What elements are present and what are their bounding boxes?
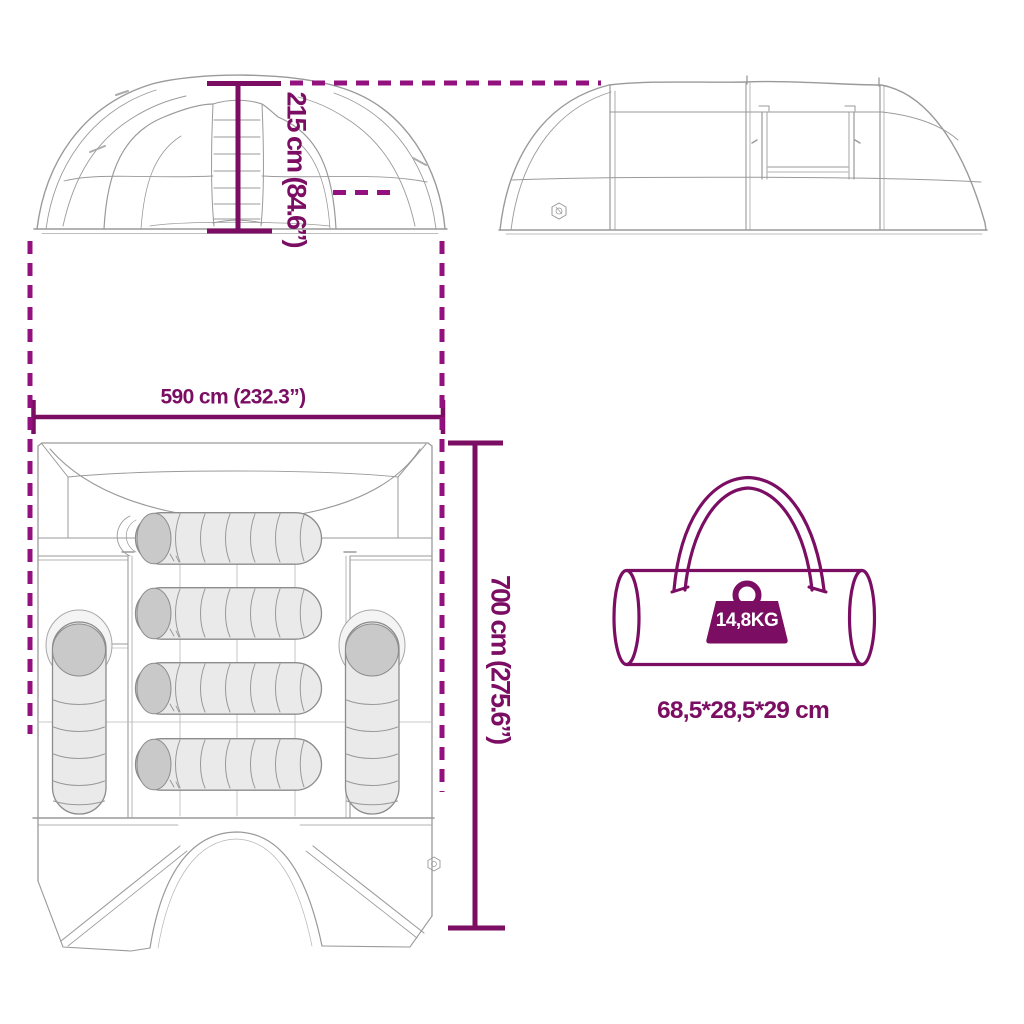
bag-size-label: 68,5*28,5*29 cm xyxy=(657,699,829,724)
brand-logo-icon xyxy=(428,857,440,871)
sleeping-bags xyxy=(46,513,405,814)
sleeping-bag-horizontal-2 xyxy=(136,588,322,640)
sleeping-bag-horizontal-4 xyxy=(136,739,322,791)
side-view-illustration xyxy=(499,76,987,234)
depth-dimension-label: 700 cm (275.6”) xyxy=(487,575,514,743)
height-dimension-line xyxy=(207,84,281,232)
sleeping-bag-vertical-left xyxy=(53,622,107,814)
bag-handle xyxy=(672,478,826,593)
sleeping-bag-horizontal-1 xyxy=(136,513,322,565)
tent-dimension-diagram: 215 cm (84.6”) 590 cm (232.3”) 700 cm (2… xyxy=(0,0,1024,1024)
side-window xyxy=(752,106,860,179)
height-dimension-label: 215 cm (84.6”) xyxy=(283,91,310,246)
sleeping-bag-horizontal-3 xyxy=(136,663,322,715)
diagram-canvas xyxy=(0,0,1024,1024)
bag-weight-label: 14,8KG xyxy=(716,610,778,632)
brand-logo-icon xyxy=(552,203,566,219)
sleeping-bag-vertical-right xyxy=(346,622,400,814)
width-dimension-label: 590 cm (232.3”) xyxy=(160,387,305,408)
